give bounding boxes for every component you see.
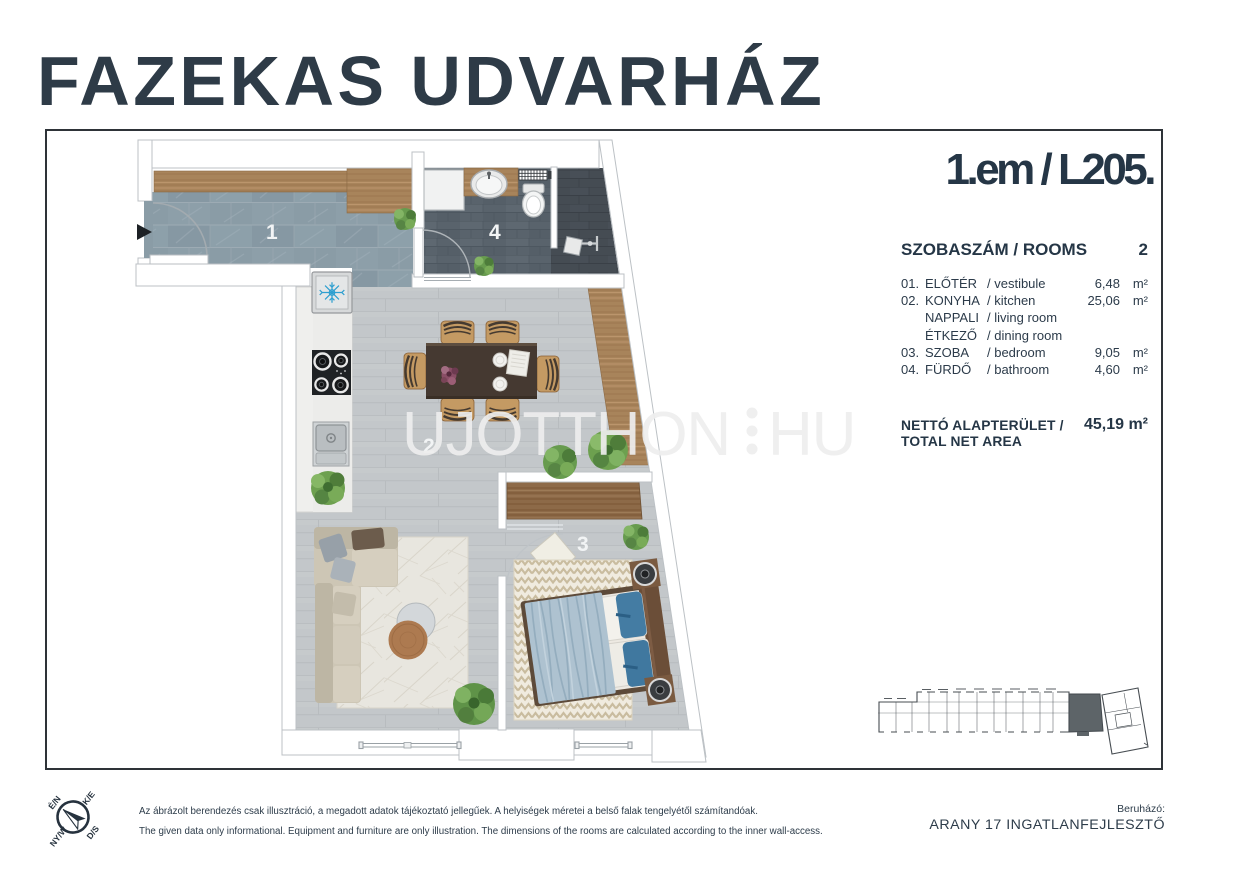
svg-text:NY/W: NY/W [48,824,70,848]
svg-text:1: 1 [266,221,278,244]
svg-text:4: 4 [489,221,501,244]
svg-text:UJOTTHON: UJOTTHON [402,400,730,469]
svg-text:HU: HU [768,400,855,469]
svg-text:3: 3 [577,533,589,556]
